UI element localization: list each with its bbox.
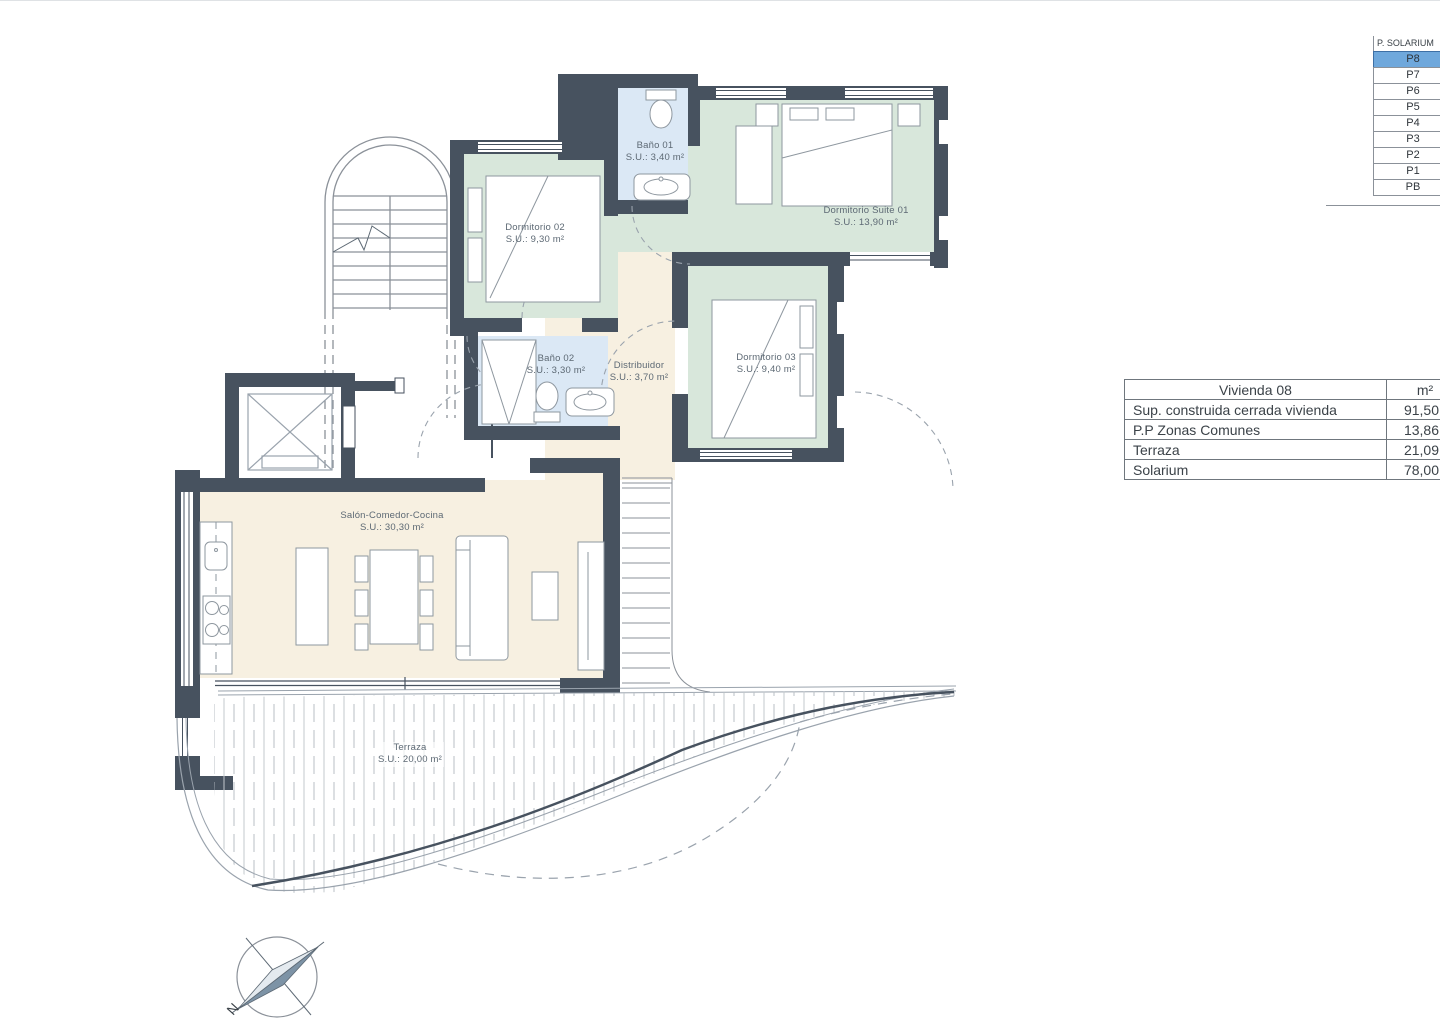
room-label-dormitorio-03: Dormitorio 03 S.U.: 9,40 m² bbox=[736, 352, 796, 377]
room-name: Terraza bbox=[378, 742, 442, 754]
room-area: S.U.: 3,70 m² bbox=[610, 372, 669, 384]
room-area: S.U.: 13,90 m² bbox=[823, 217, 908, 229]
elevator bbox=[225, 373, 404, 492]
glass-door bbox=[215, 677, 595, 690]
floor-row-p8[interactable]: P8 bbox=[1373, 51, 1440, 68]
table-row: Solarium 78,00 bbox=[1125, 460, 1440, 480]
compass-rose: N bbox=[223, 937, 324, 1018]
room-area: S.U.: 9,30 m² bbox=[505, 234, 565, 246]
row-value: 21,09 bbox=[1387, 440, 1440, 460]
floor-plan-drawing: N bbox=[0, 0, 1440, 1024]
table-row: Sup. construida cerrada vivienda 91,50 bbox=[1125, 400, 1440, 420]
row-label: Sup. construida cerrada vivienda bbox=[1125, 400, 1387, 420]
area-table-unit: m² bbox=[1387, 380, 1440, 400]
room-area: S.U.: 20,00 m² bbox=[378, 754, 442, 766]
row-value: 13,86 bbox=[1387, 420, 1440, 440]
terrace bbox=[177, 686, 956, 893]
table-row: P.P Zonas Comunes 13,86 bbox=[1125, 420, 1440, 440]
room-name: Dormitorio 02 bbox=[505, 222, 565, 234]
room-name: Distribuidor bbox=[610, 360, 669, 372]
room-label-suite-01: Dormitorio Suite 01 S.U.: 13,90 m² bbox=[823, 205, 908, 230]
room-label-bano-01: Baño 01 S.U.: 3,40 m² bbox=[626, 140, 685, 165]
coffee-table bbox=[532, 572, 558, 620]
room-area: S.U.: 3,30 m² bbox=[527, 365, 586, 377]
room-label-distribuidor: Distribuidor S.U.: 3,70 m² bbox=[610, 360, 669, 385]
row-value: 78,00 bbox=[1387, 460, 1440, 480]
compass-needle-light bbox=[238, 947, 318, 1009]
floor-selector: P. SOLARIUM P8 P7 P6 P5 P4 P3 P2 P1 PB bbox=[1373, 36, 1440, 196]
room-label-salon: Salón-Comedor-Cocina S.U.: 30,30 m² bbox=[340, 510, 443, 535]
kitchen-counter bbox=[200, 522, 232, 674]
elevator-car bbox=[248, 394, 332, 470]
kitchen-island bbox=[296, 548, 328, 645]
tv-unit bbox=[578, 542, 604, 670]
room-name: Dormitorio Suite 01 bbox=[823, 205, 908, 217]
room-label-terraza: Terraza S.U.: 20,00 m² bbox=[376, 742, 444, 767]
area-table-title: Vivienda 08 bbox=[1125, 380, 1387, 400]
floor-row-p4[interactable]: P4 bbox=[1373, 115, 1440, 132]
area-table: Vivienda 08 m² Sup. construida cerrada v… bbox=[1124, 379, 1440, 480]
room-name: Baño 02 bbox=[527, 353, 586, 365]
floor-row-p3[interactable]: P3 bbox=[1373, 131, 1440, 148]
row-value: 91,50 bbox=[1387, 400, 1440, 420]
floor-row-p5[interactable]: P5 bbox=[1373, 99, 1440, 116]
compass-north-label: N bbox=[223, 1000, 242, 1018]
floor-row-p6[interactable]: P6 bbox=[1373, 83, 1440, 100]
dining-set bbox=[355, 550, 433, 650]
row-label: P.P Zonas Comunes bbox=[1125, 420, 1387, 440]
bed-suite-01 bbox=[736, 104, 920, 206]
floor-selector-baseline bbox=[1326, 205, 1440, 206]
room-name: Dormitorio 03 bbox=[736, 352, 796, 364]
floor-row-p7[interactable]: P7 bbox=[1373, 67, 1440, 84]
row-label: Terraza bbox=[1125, 440, 1387, 460]
floor-selector-title: P. SOLARIUM bbox=[1373, 36, 1440, 52]
entrance-wall-stub bbox=[355, 381, 397, 391]
sofa bbox=[456, 536, 508, 660]
floor-row-pb[interactable]: PB bbox=[1373, 179, 1440, 196]
row-label: Solarium bbox=[1125, 460, 1387, 480]
exterior-stairs bbox=[622, 478, 710, 692]
wardrobe-suite bbox=[736, 126, 772, 204]
room-name: Salón-Comedor-Cocina bbox=[340, 510, 443, 522]
room-label-dormitorio-02: Dormitorio 02 S.U.: 9,30 m² bbox=[505, 222, 565, 247]
room-area: S.U.: 30,30 m² bbox=[340, 522, 443, 534]
room-area: S.U.: 3,40 m² bbox=[626, 152, 685, 164]
floor-row-p1[interactable]: P1 bbox=[1373, 163, 1440, 180]
floor-row-p2[interactable]: P2 bbox=[1373, 147, 1440, 164]
stair-break-mark bbox=[333, 226, 390, 252]
room-area: S.U.: 9,40 m² bbox=[736, 364, 796, 376]
area-table-header-row: Vivienda 08 m² bbox=[1125, 380, 1440, 400]
table-row: Terraza 21,09 bbox=[1125, 440, 1440, 460]
room-label-bano-02: Baño 02 S.U.: 3,30 m² bbox=[527, 353, 586, 378]
kitchen-sink bbox=[205, 542, 227, 570]
room-name: Baño 01 bbox=[626, 140, 685, 152]
